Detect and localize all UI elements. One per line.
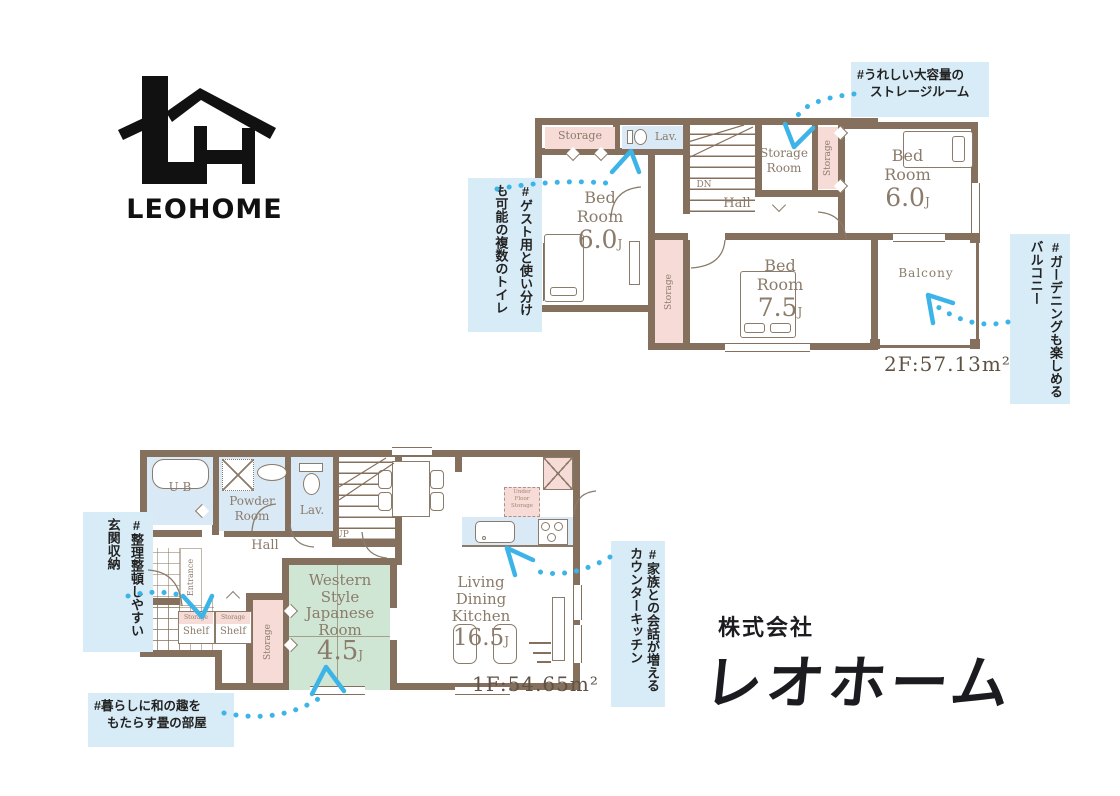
hall-label-1f: Hall (243, 538, 287, 553)
annotation-line: バルコニー (1026, 240, 1046, 398)
stairs-down-label: DN (692, 180, 716, 190)
toilet-tank-2f (627, 130, 633, 144)
bedroom-left-label: Bed Room 6.0J (556, 188, 644, 253)
logo-roof (166, 88, 276, 139)
annotation-line: もたらす畳の部屋 (94, 715, 228, 732)
wall (683, 240, 690, 350)
window (725, 343, 810, 352)
burner (541, 522, 550, 531)
balcony-post (870, 339, 880, 349)
chair (430, 492, 444, 511)
wall (282, 558, 289, 690)
wall (212, 450, 219, 535)
shelf-cell-top: Storage (179, 612, 213, 624)
room-size: 6.0 (578, 225, 618, 254)
burner (554, 522, 563, 531)
room-size: 4.5 (317, 636, 358, 666)
shower-unit-x (222, 459, 254, 491)
floor2-area-label: 2F:57.13m² (884, 352, 1011, 376)
room-size: 6.0 (885, 183, 925, 212)
annotation-multiple-toilets: #ゲスト用と使い分け も可能の複数のトイレ (468, 178, 542, 332)
wall (282, 558, 402, 565)
annotation-line: #ゲスト用と使い分け (512, 184, 537, 326)
logo-letter-h-bar (194, 150, 255, 164)
chair (378, 492, 392, 511)
annotation-line: ストレージルーム (857, 84, 983, 101)
pillow (770, 323, 791, 333)
annotation-line: #家族との会話が増える (643, 547, 660, 701)
floor2-notch-patch (528, 313, 650, 357)
window (573, 625, 582, 663)
shelf-cell: Storage Shelf (215, 611, 252, 644)
annotation-line: も可能の複数のトイレ (488, 184, 513, 326)
wall (755, 190, 845, 197)
room-size: 16.5 (453, 625, 504, 651)
tv-line (537, 661, 551, 663)
japanese-room-label: Western Style Japanese Room 4.5J (297, 572, 383, 665)
under-floor-storage-label: Under Floor Storage (505, 489, 539, 510)
balcony-label: Balcony (886, 266, 966, 280)
logo-wordmark: LEOHOME (112, 194, 297, 225)
annotation-entrance-storage: #整理整頓しやすい 玄関収納 (83, 512, 153, 652)
storage-room-label: Storage Room (750, 146, 818, 176)
floor1-area-label: 1F:54.65m² (472, 672, 599, 696)
burner (547, 533, 556, 542)
shelf-label: Shelf (216, 626, 250, 637)
annotation-storage-room: #うれしい大容量の ストレージルーム (851, 62, 989, 117)
faucet-dot (482, 536, 486, 540)
chair (378, 470, 392, 489)
unit-bath-label: U B (158, 480, 202, 494)
floorplan-flyer: { "branding": { "wordmark": "LEOHOME", "… (0, 0, 1120, 796)
wall (390, 640, 397, 690)
annotation-line: カウンターキッチン (626, 547, 643, 701)
room-size-unit: J (617, 237, 622, 251)
pillow (550, 287, 577, 296)
bedroom-top-right-label: Bed Room 6.0J (860, 146, 955, 211)
storage-top-label: Storage (545, 129, 615, 142)
wall (725, 233, 875, 240)
entrance-label: Entrance (180, 548, 202, 606)
wall (542, 148, 690, 155)
annotation-balcony-gardening: #ガーデニングも楽しめる バルコニー (1010, 234, 1070, 404)
annotation-tatami-room: #暮らしに和の趣を もたらす畳の部屋 (88, 693, 234, 747)
tv-stand (552, 597, 565, 661)
wall (390, 558, 397, 608)
shelf-label: Shelf (179, 626, 213, 637)
room-size: 7.5 (758, 293, 798, 322)
balcony-post (970, 233, 980, 243)
storage-strip-mid-label: Storage (655, 262, 683, 322)
storage-strip-right-label: Storage (818, 127, 838, 189)
room-size-unit: J (925, 195, 930, 209)
annotation-line: #うれしい大容量の (857, 67, 983, 84)
ldk-label: Living Dining Kitchen 16.5J (448, 574, 514, 652)
kitchen-sink (475, 521, 515, 543)
wall (455, 450, 462, 472)
window (971, 183, 980, 233)
logo-letter-l (142, 76, 198, 184)
wall (648, 233, 688, 240)
refrigerator-space (543, 457, 573, 490)
tv-line (529, 642, 551, 644)
floor2-balcony-outline (875, 237, 979, 348)
room-name: Living Dining Kitchen (450, 574, 512, 625)
room-size-unit: J (504, 634, 509, 648)
lav-label-1f: Lav. (293, 503, 331, 517)
room-name: Bed Room (569, 188, 631, 226)
company-name: レオホーム (701, 636, 1018, 720)
dining-table (392, 461, 430, 517)
sink-basin (257, 464, 287, 481)
room-name: Bed Room (877, 146, 939, 184)
floor1-notch-patch (133, 657, 219, 697)
toilet-tank-1f (299, 463, 323, 472)
window (893, 233, 945, 242)
window (310, 686, 365, 695)
balcony-post (970, 339, 980, 349)
leohome-logo-icon (112, 66, 302, 194)
wall (683, 122, 690, 214)
wall (332, 540, 402, 547)
wall (224, 530, 336, 537)
annotation-line: #暮らしに和の趣を (94, 698, 228, 715)
room-name: Western Style Japanese Room (300, 572, 380, 638)
shelf-cell: Storage Shelf (178, 611, 215, 644)
annotation-line: 玄関収納 (101, 518, 124, 646)
chair (430, 470, 444, 489)
tv-line (533, 652, 551, 654)
storage-strip-1f-label: Storage (253, 610, 283, 674)
annotation-counter-kitchen: #家族との会話が増える カウンターキッチン (611, 541, 665, 707)
room-size-unit: J (358, 648, 363, 662)
powder-room-label: Powder Room (219, 494, 285, 524)
room-size-unit: J (797, 305, 802, 319)
annotation-line: #ガーデニングも楽しめる (1046, 240, 1066, 398)
stairs-up-label: UP (330, 530, 354, 540)
annotation-line: #整理整頓しやすい (125, 518, 148, 646)
wall (535, 305, 655, 312)
window (392, 447, 432, 456)
toilet-bowl-1f (303, 473, 320, 495)
pillow (744, 323, 765, 333)
hall-label-2f: Hall (712, 196, 762, 211)
window (573, 585, 582, 620)
bedroom-bottom-label: Bed Room 7.5J (730, 256, 830, 321)
stove (538, 519, 568, 545)
room-name: Bed Room (749, 256, 811, 294)
shelf-cell-top: Storage (216, 612, 250, 624)
lav-label-2f: Lav. (648, 130, 684, 143)
wall (215, 650, 222, 690)
wall (648, 155, 655, 350)
dotted-trail-tatami (224, 699, 318, 716)
toilet-bowl-2f (634, 129, 647, 145)
